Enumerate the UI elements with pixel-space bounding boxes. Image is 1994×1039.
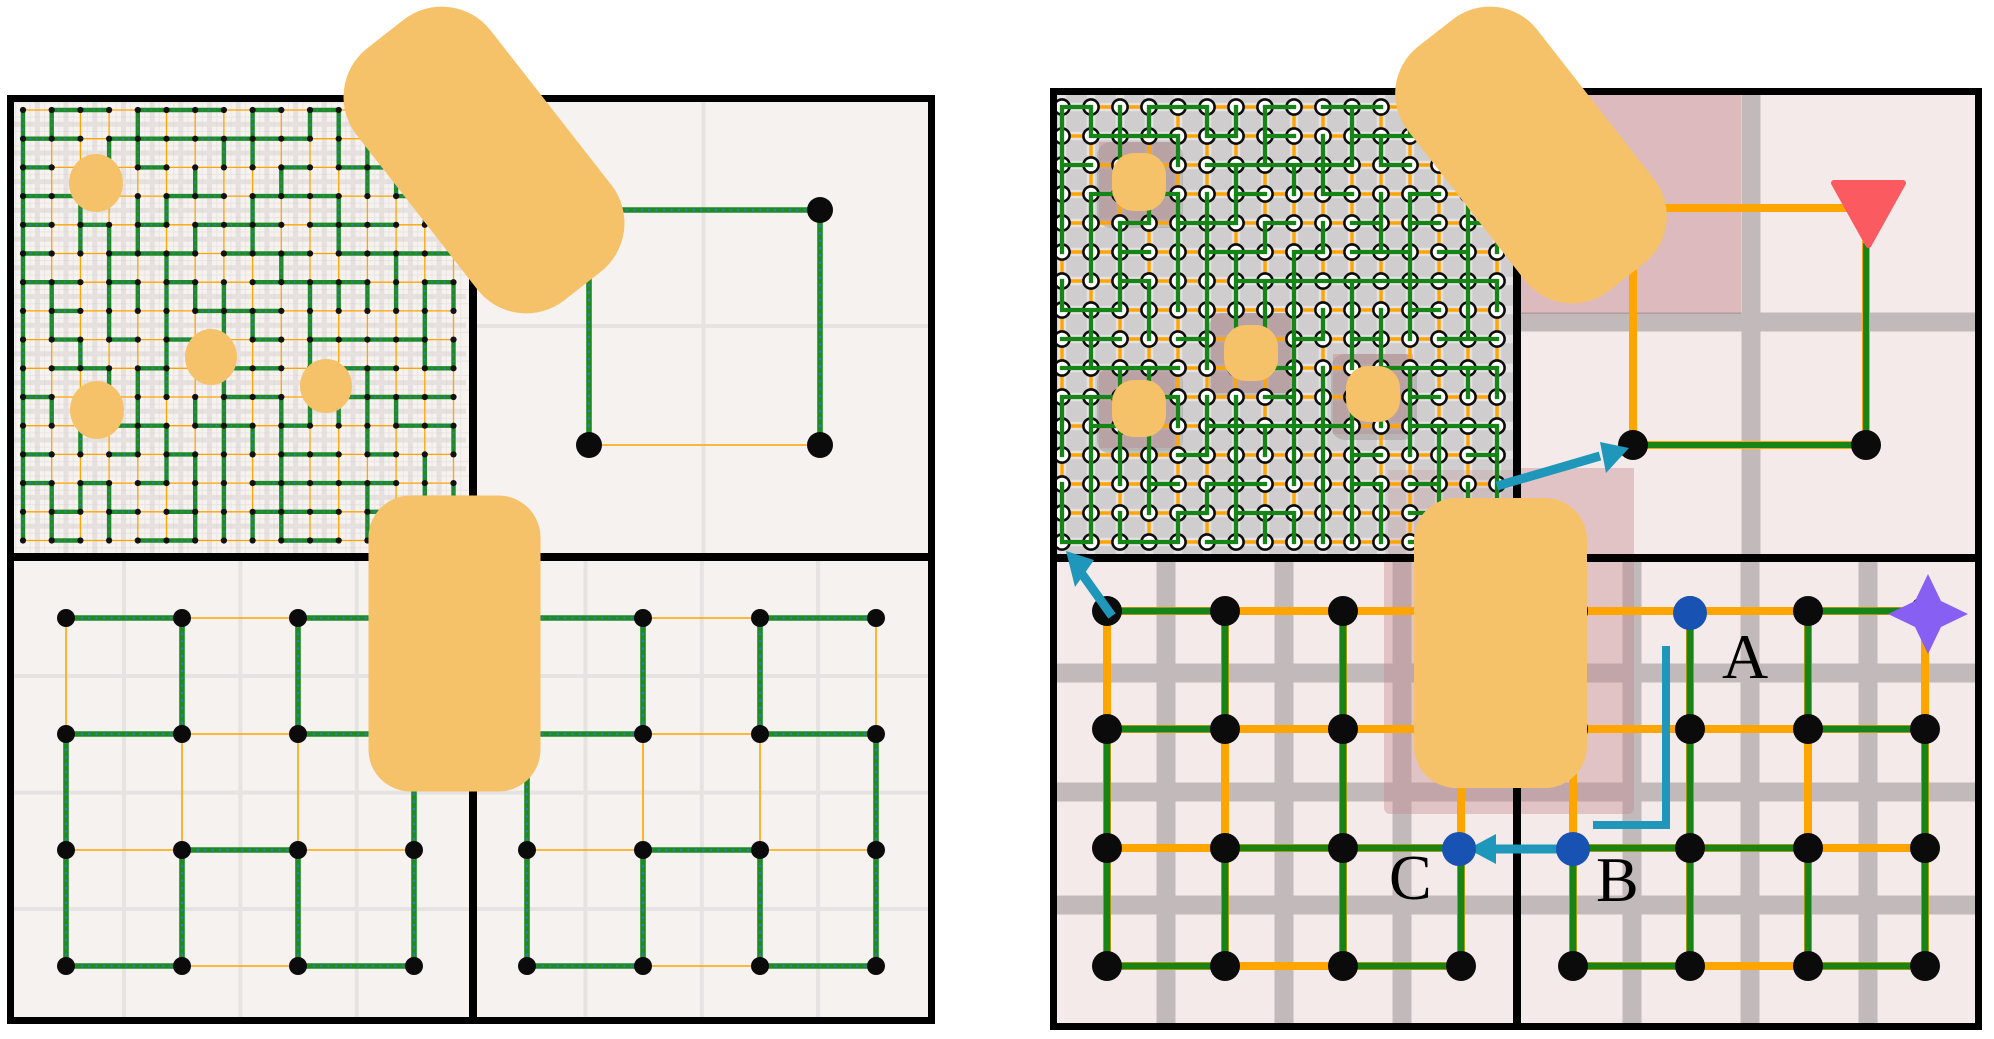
svg-text:A: A [1722, 621, 1768, 692]
svg-text:C: C [1389, 842, 1432, 913]
svg-text:B: B [1596, 844, 1639, 915]
